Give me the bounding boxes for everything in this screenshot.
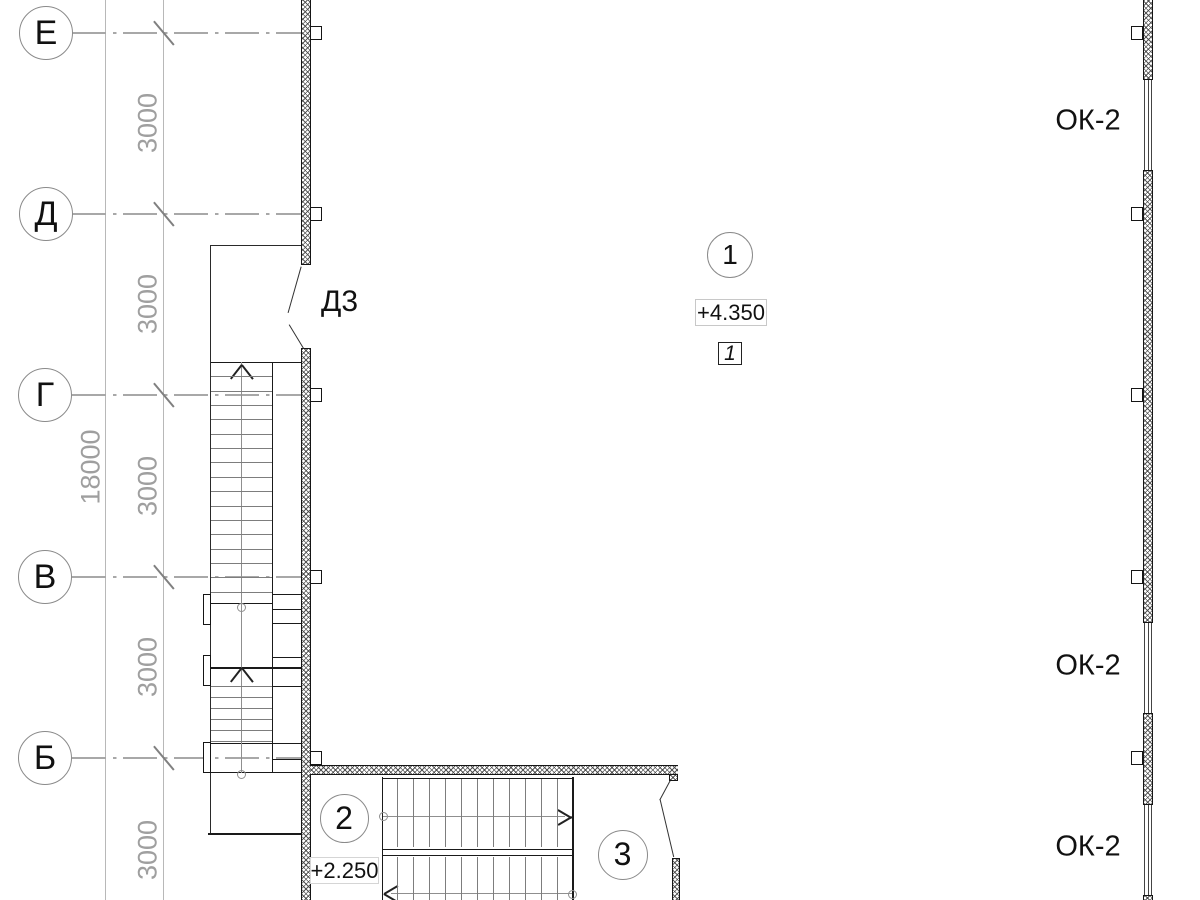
elevation-lower: +2.250 — [310, 857, 379, 884]
wall-right-seg1 — [1143, 0, 1153, 80]
tread-line — [211, 741, 272, 742]
tread-line — [461, 779, 462, 847]
wall-stub-lower — [672, 858, 681, 900]
wall-left-lower — [301, 348, 311, 900]
stair2-right-edge — [572, 777, 574, 900]
partition-line — [272, 657, 301, 658]
path-start-marker — [379, 812, 388, 821]
tread-line — [509, 779, 510, 847]
tread-line — [211, 506, 272, 507]
partition-line — [272, 594, 301, 595]
floor-type-marker: 1 — [718, 342, 742, 365]
stair1-flight2-bottom — [211, 743, 301, 745]
wall-right-seg3 — [1143, 713, 1153, 805]
grid-line-g — [72, 394, 302, 395]
path-start-marker — [237, 603, 246, 612]
dim-text-bay: 3000 — [133, 820, 164, 880]
wall-end-jamb — [669, 775, 678, 781]
partition-line — [272, 686, 301, 687]
wall-right-seg4 — [1143, 895, 1153, 900]
door-leaf — [659, 799, 674, 856]
tread-line — [211, 448, 272, 449]
stair1-top-edge — [211, 362, 301, 364]
pilaster — [1131, 388, 1143, 402]
pilaster — [310, 388, 322, 402]
tread-line — [211, 405, 272, 406]
window-label: ОК-2 — [1055, 831, 1120, 864]
tread-line — [413, 857, 414, 900]
node-marker-3: 3 — [598, 830, 648, 880]
tread-line — [211, 419, 272, 420]
tread-line — [211, 592, 272, 593]
window-ok2-2 — [1144, 623, 1153, 713]
door-leaf — [659, 780, 671, 800]
tread-line — [413, 779, 414, 847]
stair2-center-line — [391, 893, 572, 894]
pilaster — [1131, 570, 1143, 584]
tread-line — [211, 563, 272, 564]
tread-line — [211, 730, 272, 731]
door-d3-leaf — [288, 324, 304, 349]
node-number: 2 — [335, 800, 353, 837]
tread-line — [493, 779, 494, 847]
dim-text-bay: 3000 — [133, 456, 164, 516]
tread-line — [397, 857, 398, 900]
window-label: ОК-2 — [1055, 105, 1120, 138]
pilaster — [1131, 751, 1143, 765]
axis-label: Б — [34, 739, 56, 778]
room-bottom-wall — [208, 833, 301, 835]
wall-bottom-horizontal — [310, 765, 678, 775]
window-label: ОК-2 — [1055, 650, 1120, 683]
tread-line — [557, 857, 558, 900]
wall-pier — [203, 594, 211, 625]
tread-line — [211, 391, 272, 392]
stair1-center-line — [241, 362, 242, 773]
tread-line — [461, 857, 462, 900]
tread-line — [211, 708, 272, 709]
tread-line — [541, 779, 542, 847]
tread-line — [211, 434, 272, 435]
node-number: 1 — [722, 239, 738, 271]
tread-line — [445, 779, 446, 847]
tread-line — [211, 477, 272, 478]
axis-label: В — [34, 558, 57, 597]
node-number: 3 — [614, 836, 632, 873]
axis-bubble-g: Г — [18, 368, 72, 422]
tread-line — [509, 857, 510, 900]
node-marker-1: 1 — [707, 232, 753, 278]
dim-text-overall: 18000 — [76, 429, 107, 504]
window-ok2-1 — [1144, 80, 1153, 170]
stair-arrow-left — [383, 893, 398, 900]
grid-line-b — [72, 757, 302, 758]
dim-text-bay: 3000 — [133, 274, 164, 334]
node-marker-2: 2 — [320, 794, 369, 843]
tread-line — [211, 549, 272, 550]
path-start-marker — [237, 770, 246, 779]
stair1-right-edge — [272, 362, 274, 773]
axis-label: Г — [36, 376, 54, 415]
tread-line — [211, 697, 272, 698]
door-d3-leaf — [287, 266, 301, 312]
stair1-flight2-top — [211, 667, 301, 669]
tread-line — [211, 520, 272, 521]
tread-line — [211, 462, 272, 463]
grid-line-e — [72, 32, 302, 33]
stair-arrow-up — [241, 667, 253, 682]
tread-line — [429, 857, 430, 900]
dim-text-bay: 3000 — [133, 637, 164, 697]
wall-right-seg2 — [1143, 170, 1153, 623]
tread-line — [397, 779, 398, 847]
tread-line — [525, 857, 526, 900]
tread-line — [211, 719, 272, 720]
dim-text-bay: 3000 — [133, 93, 164, 153]
tread-line — [211, 577, 272, 578]
window-ok2-3 — [1144, 805, 1153, 895]
tread-line — [477, 857, 478, 900]
axis-bubble-e: Е — [19, 6, 73, 60]
path-start-marker — [568, 890, 577, 899]
pilaster — [1131, 26, 1143, 40]
partition-line — [272, 609, 301, 610]
room-top-wall — [211, 245, 301, 247]
pilaster — [310, 26, 322, 40]
tread-line — [211, 376, 272, 377]
stair2-divider — [382, 849, 574, 851]
tread-line — [525, 779, 526, 847]
stair2-center-line — [383, 816, 565, 817]
axis-label: Е — [35, 14, 58, 53]
tread-line — [477, 779, 478, 847]
wall-pier — [203, 742, 211, 773]
wall-pier — [203, 655, 211, 686]
door-label: Д3 — [321, 285, 358, 319]
axis-bubble-d: Д — [19, 187, 73, 241]
tread-line — [493, 857, 494, 900]
tread-line — [445, 857, 446, 900]
grid-line-d — [72, 213, 302, 214]
axis-bubble-b: Б — [18, 731, 72, 785]
tread-line — [541, 857, 542, 900]
tread-line — [429, 779, 430, 847]
pilaster — [310, 207, 322, 221]
stair-arrow-right — [557, 816, 572, 825]
axis-label: Д — [34, 195, 57, 234]
tread-line — [211, 534, 272, 535]
pilaster — [310, 570, 322, 584]
tread-line — [211, 491, 272, 492]
pilaster — [310, 751, 322, 765]
stair1-bottom-edge — [211, 772, 301, 774]
tread-line — [557, 779, 558, 847]
floor-plan-sheet: Е Д Г В Б 3000 3000 3000 3000 3000 18000… — [0, 0, 1200, 900]
stair2-left-edge — [382, 777, 384, 900]
elevation-upper: +4.350 — [695, 299, 767, 326]
partition-line — [272, 759, 301, 760]
pilaster — [1131, 207, 1143, 221]
partition-line — [272, 623, 301, 624]
axis-bubble-v: В — [18, 550, 72, 604]
tread-line — [211, 686, 272, 687]
